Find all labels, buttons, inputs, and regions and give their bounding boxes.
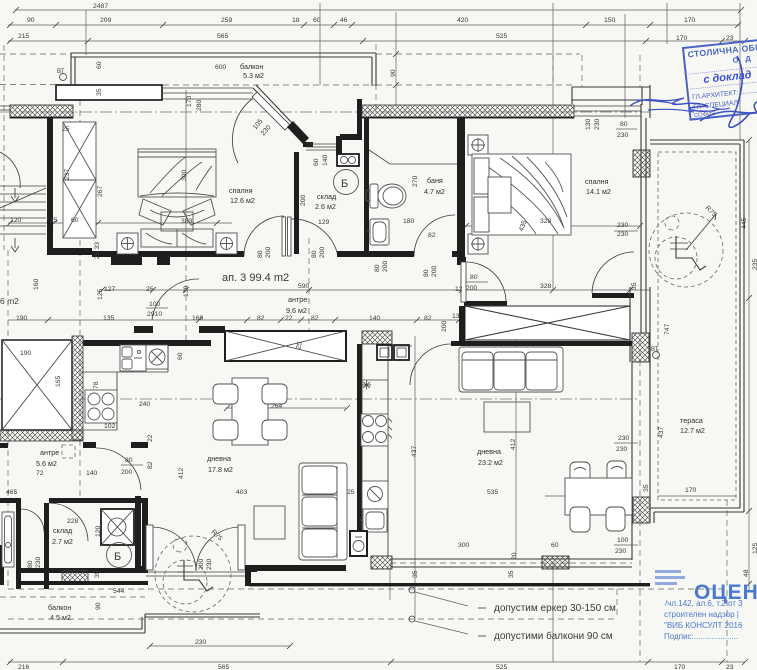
svg-text:80: 80 — [27, 560, 34, 568]
svg-text:80: 80 — [620, 121, 628, 128]
svg-text:412: 412 — [510, 438, 517, 450]
svg-text:140: 140 — [86, 470, 98, 477]
svg-text:17.8 м2: 17.8 м2 — [208, 465, 233, 474]
svg-text:4.5 м2: 4.5 м2 — [50, 613, 71, 622]
svg-text:18: 18 — [292, 17, 300, 24]
svg-text:267: 267 — [97, 185, 104, 197]
svg-text:балкон: балкон — [240, 62, 263, 71]
svg-text:180: 180 — [403, 218, 415, 225]
svg-text:200: 200 — [431, 265, 438, 277]
svg-text:230: 230 — [617, 222, 629, 229]
svg-text:80: 80 — [311, 250, 318, 258]
svg-text:230: 230 — [615, 548, 627, 555]
svg-text:200: 200 — [300, 194, 307, 206]
svg-text:14.1 м2: 14.1 м2 — [586, 187, 611, 196]
svg-text:100: 100 — [617, 537, 629, 544]
svg-text:12.6 м2: 12.6 м2 — [230, 196, 255, 205]
svg-text:35: 35 — [643, 484, 650, 492]
svg-text:235: 235 — [752, 258, 757, 270]
svg-text:437: 437 — [411, 445, 418, 457]
svg-text:125: 125 — [752, 542, 757, 554]
svg-text:60: 60 — [313, 158, 320, 166]
svg-text:35: 35 — [412, 570, 419, 578]
svg-text:25: 25 — [347, 489, 355, 496]
svg-text:150: 150 — [604, 17, 616, 24]
svg-text:ап. 3 99.4 m2: ап. 3 99.4 m2 — [222, 272, 289, 284]
svg-text:2.6 м2: 2.6 м2 — [315, 202, 336, 211]
svg-text:403: 403 — [236, 489, 248, 496]
svg-text:80: 80 — [125, 457, 133, 464]
svg-text:200: 200 — [319, 246, 326, 258]
svg-text:25 33: 25 33 — [94, 242, 101, 259]
svg-text:100: 100 — [149, 301, 161, 308]
svg-text:200: 200 — [441, 320, 448, 332]
svg-text:2.7 м2: 2.7 м2 — [52, 537, 73, 546]
svg-text:90: 90 — [95, 602, 102, 610]
svg-text:4.7 м2: 4.7 м2 — [424, 187, 445, 196]
svg-text:82: 82 — [428, 232, 436, 239]
svg-text:160: 160 — [33, 278, 40, 290]
svg-text:дневна: дневна — [207, 454, 231, 463]
svg-text:35: 35 — [94, 570, 101, 578]
svg-text:200: 200 — [121, 469, 133, 476]
svg-text:дневна: дневна — [477, 447, 501, 456]
svg-text:200: 200 — [382, 260, 389, 272]
svg-text:535: 535 — [487, 489, 499, 496]
svg-text:25: 25 — [50, 217, 58, 224]
svg-text:437: 437 — [658, 426, 665, 438]
svg-text:230: 230 — [35, 556, 42, 568]
svg-text:230: 230 — [618, 435, 630, 442]
svg-text:328: 328 — [540, 218, 552, 225]
svg-text:80: 80 — [257, 250, 264, 258]
svg-text:5.3 м2: 5.3 м2 — [243, 71, 264, 80]
svg-text:ВТ: ВТ — [651, 347, 659, 353]
svg-text:209: 209 — [100, 17, 112, 24]
svg-text:спалня: спалня — [585, 177, 609, 186]
svg-text:80: 80 — [423, 269, 430, 277]
svg-text:90: 90 — [27, 17, 35, 24]
svg-text:допустим еркер 30-150 см: допустим еркер 30-150 см — [494, 603, 616, 614]
svg-text:60: 60 — [71, 217, 79, 224]
svg-text:228: 228 — [67, 518, 79, 525]
svg-text:270: 270 — [412, 175, 419, 187]
svg-text:259: 259 — [221, 17, 233, 24]
svg-text:215: 215 — [18, 33, 30, 40]
svg-text:78: 78 — [93, 381, 100, 389]
svg-text:/чл.142, ал.6, т.2 от 3: /чл.142, ал.6, т.2 от 3 — [665, 599, 743, 608]
svg-text:140: 140 — [369, 315, 381, 322]
svg-text:169: 169 — [192, 315, 204, 322]
svg-text:строителен надзор |: строителен надзор | — [664, 610, 739, 619]
svg-text:237: 237 — [64, 168, 71, 180]
svg-text:ВТ: ВТ — [57, 69, 65, 75]
svg-text:80: 80 — [374, 264, 381, 272]
svg-text:230: 230 — [206, 558, 213, 570]
svg-text:60: 60 — [96, 61, 103, 69]
svg-text:412: 412 — [178, 467, 185, 479]
svg-text:13: 13 — [452, 313, 460, 320]
svg-text:125: 125 — [97, 288, 104, 300]
svg-text:590: 590 — [298, 283, 310, 290]
svg-text:170: 170 — [685, 487, 697, 494]
svg-text:170: 170 — [674, 664, 686, 670]
svg-text:190: 190 — [20, 350, 32, 357]
svg-text:200: 200 — [198, 558, 205, 570]
svg-text:35: 35 — [508, 570, 515, 578]
svg-text:420: 420 — [457, 17, 469, 24]
svg-text:328: 328 — [540, 283, 552, 290]
svg-text:230: 230 — [195, 639, 207, 646]
svg-text:"ВИБ КОНСУЛТ 2016: "ВИБ КОНСУЛТ 2016 — [664, 621, 743, 630]
svg-text:спалня: спалня — [229, 186, 253, 195]
svg-text:300: 300 — [458, 542, 470, 549]
svg-text:120: 120 — [95, 525, 102, 537]
svg-text:2910: 2910 — [147, 311, 162, 318]
svg-text:170: 170 — [186, 95, 193, 107]
svg-text:22: 22 — [147, 434, 154, 442]
svg-text:9.6 м2: 9.6 м2 — [286, 306, 307, 315]
svg-text:216: 216 — [18, 664, 30, 670]
svg-text:склад: склад — [317, 192, 337, 201]
svg-text:82: 82 — [424, 315, 432, 322]
svg-text:165: 165 — [55, 375, 62, 387]
svg-text:565: 565 — [218, 664, 230, 670]
svg-text:565: 565 — [217, 33, 229, 40]
svg-text:46: 46 — [340, 17, 348, 24]
svg-text:23: 23 — [726, 35, 734, 42]
svg-text:300: 300 — [181, 169, 188, 181]
svg-text:82: 82 — [311, 315, 319, 322]
svg-text:264: 264 — [271, 403, 283, 410]
svg-text:230: 230 — [616, 446, 628, 453]
svg-text:200: 200 — [466, 285, 478, 292]
svg-text:Б: Б — [114, 551, 121, 563]
svg-text:135: 135 — [103, 315, 115, 322]
svg-text:Б: Б — [341, 178, 348, 190]
svg-text:12: 12 — [455, 286, 463, 293]
svg-text:Подпис:....................: Подпис:.................... — [664, 632, 738, 641]
svg-text:2487: 2487 — [93, 3, 108, 10]
svg-text:60: 60 — [313, 17, 321, 24]
svg-text:280: 280 — [196, 99, 203, 111]
svg-text:170: 170 — [684, 17, 696, 24]
svg-text:тераса: тераса — [680, 416, 703, 425]
svg-text:23.2 м2: 23.2 м2 — [478, 458, 503, 467]
svg-text:129: 129 — [318, 219, 330, 226]
svg-text:72: 72 — [36, 470, 44, 477]
svg-text:25: 25 — [146, 286, 154, 293]
svg-text:склад: склад — [53, 526, 73, 535]
svg-text:525: 525 — [496, 33, 508, 40]
svg-text:20: 20 — [511, 552, 518, 560]
svg-text:80: 80 — [470, 274, 478, 281]
svg-text:230: 230 — [617, 231, 629, 238]
svg-text:допустими балкони 90 см: допустими балкони 90 см — [494, 630, 613, 642]
svg-text:35: 35 — [631, 282, 638, 290]
svg-text:12.7 м2: 12.7 м2 — [680, 426, 705, 435]
svg-text:240: 240 — [139, 401, 151, 408]
svg-text:747: 747 — [664, 323, 671, 335]
svg-text:138: 138 — [183, 285, 190, 297]
svg-text:антре: антре — [288, 295, 307, 304]
svg-text:600: 600 — [215, 64, 227, 71]
svg-text:82: 82 — [257, 315, 265, 322]
svg-text:35: 35 — [96, 88, 103, 96]
svg-text:102: 102 — [104, 423, 116, 430]
svg-text:445: 445 — [741, 217, 748, 229]
svg-text:465: 465 — [6, 489, 18, 496]
svg-text:25: 25 — [62, 126, 70, 133]
svg-text:48: 48 — [743, 569, 750, 577]
svg-text:383: 383 — [181, 218, 193, 225]
svg-text:525: 525 — [496, 664, 508, 670]
svg-text:170: 170 — [676, 35, 688, 42]
svg-text:140: 140 — [322, 154, 329, 166]
svg-text:балкон: балкон — [48, 603, 71, 612]
svg-text:230: 230 — [617, 132, 629, 139]
svg-text:200: 200 — [265, 246, 272, 258]
svg-text:130: 130 — [585, 118, 592, 130]
svg-text:127: 127 — [104, 286, 116, 293]
svg-text:5.6 м2: 5.6 м2 — [36, 459, 57, 468]
svg-text:82: 82 — [147, 461, 154, 469]
svg-text:22: 22 — [285, 315, 293, 322]
svg-text:120: 120 — [10, 217, 22, 224]
svg-text:6 m2: 6 m2 — [0, 296, 19, 306]
svg-text:60: 60 — [551, 542, 559, 549]
svg-text:190: 190 — [16, 315, 28, 322]
svg-text:60: 60 — [177, 352, 184, 360]
svg-text:23: 23 — [726, 664, 734, 670]
svg-text:90: 90 — [390, 69, 397, 77]
svg-text:баня: баня — [427, 176, 443, 185]
svg-text:антре: антре — [40, 448, 59, 457]
svg-text:230: 230 — [594, 118, 601, 130]
